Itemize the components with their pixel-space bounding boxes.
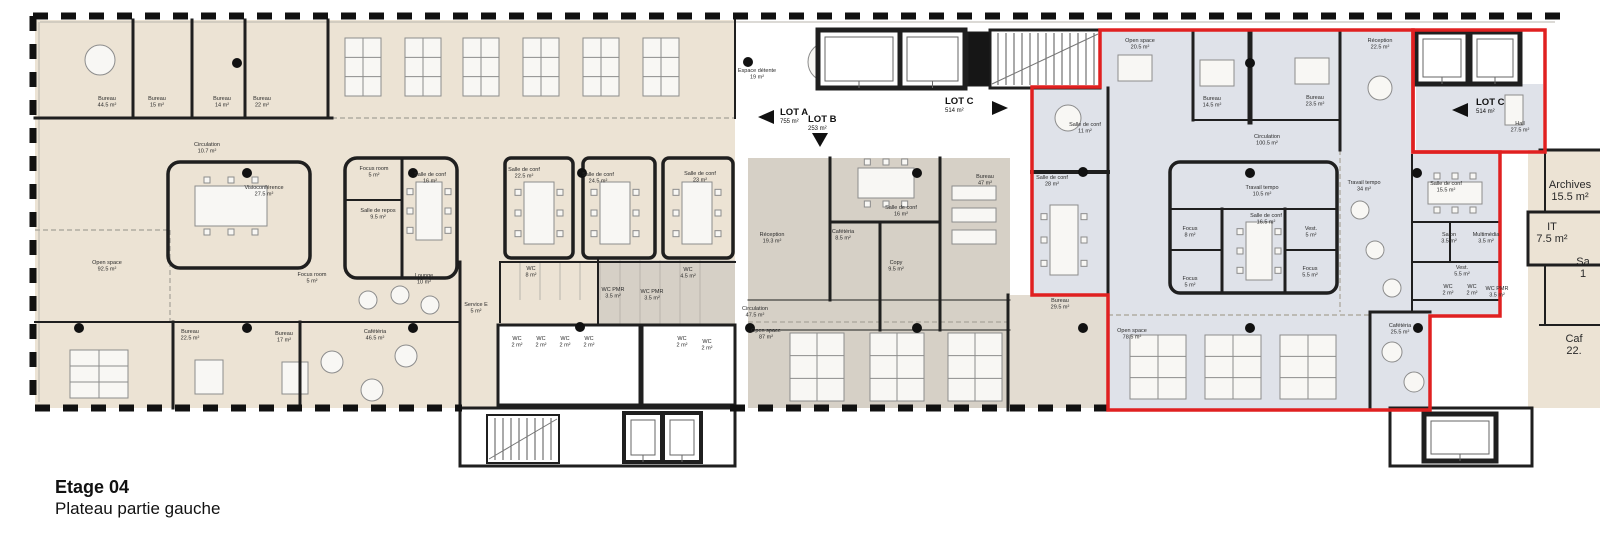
room-label: Bureau47 m²	[976, 174, 994, 187]
desk-bench	[790, 333, 844, 401]
room-label: Focus8 m²	[1183, 226, 1198, 239]
column-dot	[1245, 323, 1255, 333]
room-label: Bureau17 m²	[275, 331, 293, 344]
desk	[952, 230, 996, 244]
title-block: Etage 04 Plateau partie gauche	[55, 477, 220, 519]
column-dot	[1413, 323, 1423, 333]
column-dot	[1245, 168, 1255, 178]
room-label: WC2 m²	[536, 336, 547, 349]
room-label: WC2 m²	[584, 336, 595, 349]
column-dot	[242, 168, 252, 178]
plain-block	[642, 325, 735, 405]
desk-bench	[70, 350, 128, 398]
round-table	[395, 345, 417, 367]
lot-area: 253 m²	[808, 126, 827, 132]
room-label: Bureau14 m²	[213, 96, 231, 109]
desk-bench	[463, 38, 499, 96]
room-label: Réception22.5 m²	[1368, 38, 1393, 51]
room-label: WC PMR3.5 m²	[1486, 286, 1509, 299]
desk	[952, 186, 996, 200]
column-dot	[1078, 323, 1088, 333]
desk-bench	[583, 38, 619, 96]
column-dot	[1412, 168, 1422, 178]
elev-block	[663, 413, 701, 462]
column-dot	[912, 323, 922, 333]
lot-area: 514 m²	[945, 108, 964, 114]
column-dot	[232, 58, 242, 68]
elev-block	[900, 30, 965, 88]
lot-label: LOT B	[808, 114, 837, 125]
round-table	[361, 379, 383, 401]
round-table	[1366, 241, 1384, 259]
lot-area: 514 m²	[1476, 109, 1495, 115]
room-label: Bureau44.5 m²	[98, 96, 117, 109]
elev-block	[1470, 32, 1520, 84]
room-label: WC2 m²	[512, 336, 523, 349]
zone-hall-blue	[1416, 84, 1543, 150]
room-label: WC2 m²	[1443, 284, 1454, 297]
room-label: WC2 m²	[677, 336, 688, 349]
room-label: Focus5.5 m²	[1302, 266, 1318, 279]
column-dot	[408, 323, 418, 333]
floor-title: Etage 04	[55, 477, 220, 498]
desk	[1295, 58, 1329, 84]
elev-block	[624, 413, 662, 462]
desk-bench	[1280, 335, 1336, 399]
room-label: Salon3.5 m²	[1441, 232, 1457, 245]
room-label: Bureau22.5 m²	[181, 329, 200, 342]
lot-marker: LOT B253 m²	[808, 114, 837, 147]
floorplan-page: Bureau44.5 m²Bureau15 m²Bureau14 m²Burea…	[0, 0, 1600, 551]
desk-bench	[948, 333, 1002, 401]
room-label: Cafétéria46.5 m²	[364, 329, 387, 342]
round-table	[1383, 279, 1401, 297]
lot-area: 755 m²	[780, 119, 799, 125]
elev-block	[1416, 32, 1468, 84]
room-label: Bureau14.5 m²	[1203, 96, 1222, 109]
room-label: Circulation47.5 m²	[742, 306, 768, 319]
room-label: Réception19.3 m²	[760, 232, 785, 245]
column-dot	[242, 323, 252, 333]
desk	[952, 208, 996, 222]
room-label: Bureau29.5 m²	[1051, 298, 1070, 311]
desk	[195, 360, 223, 394]
lot-arrow-icon	[758, 110, 774, 124]
column-dot	[912, 168, 922, 178]
room-label: WC2 m²	[560, 336, 571, 349]
room-label: Bureau22 m²	[253, 96, 271, 109]
lot-label: LOT C	[945, 96, 974, 107]
desk	[282, 362, 308, 394]
room-label: Lounge10 m²	[415, 273, 433, 286]
lot-arrow-icon	[812, 133, 828, 147]
desk-bench	[1130, 335, 1186, 399]
column-dot	[1245, 58, 1255, 68]
column-dot	[74, 323, 84, 333]
elev-block	[1424, 414, 1496, 461]
column-dot	[575, 322, 585, 332]
floor-plan: Bureau44.5 m²Bureau15 m²Bureau14 m²Burea…	[0, 0, 1600, 551]
round-table	[359, 291, 377, 309]
room-label: Cafétéria25.5 m²	[1389, 323, 1412, 336]
lot-arrow-icon	[992, 101, 1008, 115]
room-label: WC8 m²	[526, 266, 537, 279]
round-table	[1382, 342, 1402, 362]
room-label: Espace détente19 m²	[738, 68, 776, 81]
desk-bench	[523, 38, 559, 96]
column-dot	[743, 57, 753, 67]
lot-label: LOT C	[1476, 97, 1505, 108]
round-table	[391, 286, 409, 304]
room-label: Caf22.	[1565, 333, 1583, 357]
elev-block	[818, 30, 900, 88]
desk-bench	[345, 38, 381, 96]
lot-label: LOT A	[780, 107, 808, 118]
room-label: Vest.5.5 m²	[1454, 265, 1470, 278]
room-label: Vest.5 m²	[1305, 226, 1318, 239]
desk-bench	[643, 38, 679, 96]
round-table	[1368, 76, 1392, 100]
desk	[1118, 55, 1152, 81]
stairs-block	[487, 415, 559, 463]
desk	[1200, 60, 1234, 86]
round-table	[421, 296, 439, 314]
desk-bench	[870, 333, 924, 401]
lot-marker: LOT C514 m²	[945, 96, 1008, 115]
solid-block	[968, 32, 990, 86]
stairs-block	[990, 30, 1100, 88]
lot-marker: LOT A755 m²	[758, 107, 808, 125]
room-label: Copy9.5 m²	[888, 260, 904, 273]
round-table	[321, 351, 343, 373]
room-label: Circulation100.5 m²	[1254, 134, 1280, 147]
zone-bureau-beige	[1008, 295, 1108, 408]
room-label: Circulation10.7 m²	[194, 142, 220, 155]
column-dot	[1078, 167, 1088, 177]
room-label: WC2 m²	[1467, 284, 1478, 297]
round-table	[85, 45, 115, 75]
desk-bench	[1205, 335, 1261, 399]
room-label: Bureau23.5 m²	[1306, 95, 1325, 108]
floor-subtitle: Plateau partie gauche	[55, 498, 220, 519]
room-label: Bureau15 m²	[148, 96, 166, 109]
room-label: Archives15.5 m²	[1549, 179, 1592, 203]
round-table	[1404, 372, 1424, 392]
round-table	[1351, 201, 1369, 219]
room-label: WC2 m²	[702, 339, 713, 352]
desk-bench	[405, 38, 441, 96]
room-label: Focus5 m²	[1183, 276, 1198, 289]
